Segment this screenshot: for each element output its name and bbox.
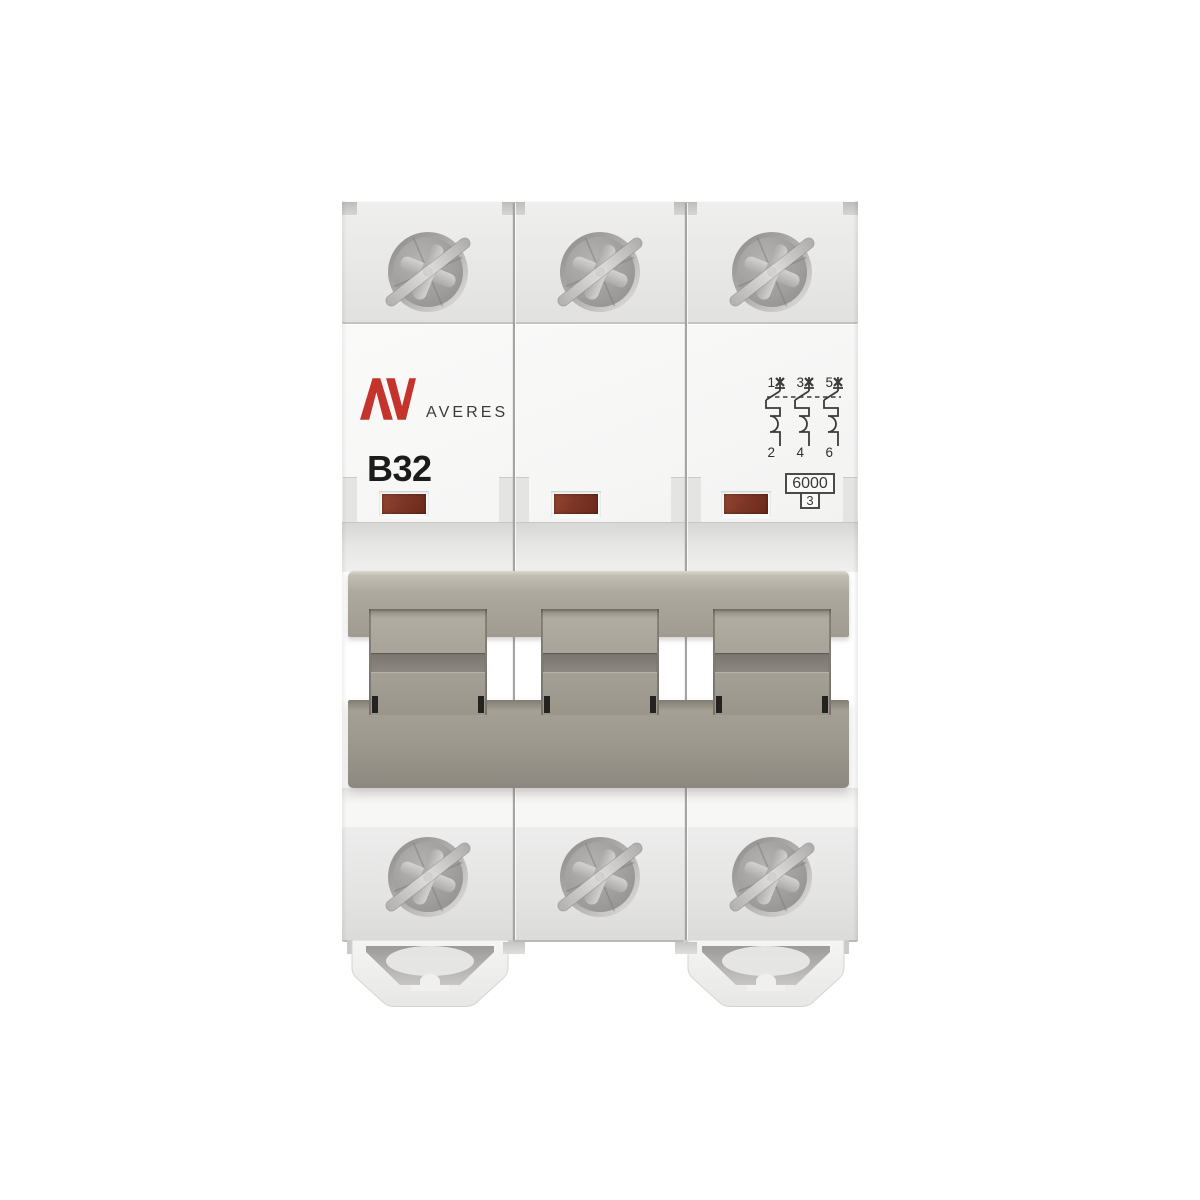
toggle-handle xyxy=(713,609,831,715)
pozidriv-screw-icon xyxy=(382,226,474,318)
terminal-label: 4 xyxy=(796,445,804,460)
terminal-screw xyxy=(554,831,646,928)
three-pole-circuit-diagram-icon: 1 3 5 2 4 6 xyxy=(755,372,847,460)
pozidriv-screw-icon xyxy=(382,831,474,923)
handle-groove xyxy=(371,653,485,672)
handle-slot xyxy=(822,696,828,713)
rating-marking: B32 xyxy=(367,448,432,490)
handle-slot xyxy=(478,696,484,713)
terminal-screw xyxy=(726,831,818,928)
lower-face xyxy=(342,788,858,826)
din-rail-clip xyxy=(683,940,849,1010)
din-rail-clip-left xyxy=(347,940,513,1015)
indicator-window xyxy=(721,491,771,517)
housing-step xyxy=(687,477,701,524)
pozidriv-screw-icon xyxy=(726,831,818,923)
energy-limiting-class-marking: 3 xyxy=(800,492,820,509)
terminal-label: 3 xyxy=(796,375,804,390)
edge-shading xyxy=(853,201,858,940)
housing-step xyxy=(515,477,529,524)
indicator-glass xyxy=(554,494,598,514)
terminal-label: 5 xyxy=(825,375,833,390)
din-rail-clip xyxy=(347,940,513,1010)
indicator-window xyxy=(379,491,429,517)
toggle-handle xyxy=(541,609,659,715)
pozidriv-screw-icon xyxy=(554,226,646,318)
handle-slot xyxy=(650,696,656,713)
indicator-glass xyxy=(382,494,426,514)
terminal-label: 6 xyxy=(825,445,833,460)
indicator-window xyxy=(551,491,601,517)
pozidriv-screw-icon xyxy=(554,831,646,923)
product-photo: AV AVERES B32 xyxy=(0,0,1200,1200)
terminal-screw xyxy=(382,831,474,928)
housing-step xyxy=(499,477,513,524)
housing-tab xyxy=(503,942,525,954)
terminal-label: 2 xyxy=(767,445,775,460)
handle-slot xyxy=(544,696,550,713)
terminal-screw xyxy=(554,226,646,323)
pozidriv-screw-icon xyxy=(726,226,818,318)
averes-logo-mark: AV xyxy=(360,378,416,420)
terminal-screw xyxy=(726,226,818,323)
circuit-breaker: AV AVERES B32 xyxy=(342,201,858,1013)
handle-slot xyxy=(372,696,378,713)
terminal-screw xyxy=(382,226,474,323)
terminal-label: 1 xyxy=(767,375,775,390)
din-rail-clip-right xyxy=(683,940,849,1015)
handle-groove xyxy=(543,653,657,672)
brand-name: AVERES xyxy=(426,404,508,422)
toggle-recess xyxy=(342,522,858,572)
edge-shading xyxy=(342,201,347,940)
breaking-capacity-marking: 6000 xyxy=(785,473,835,494)
housing-step xyxy=(671,477,685,524)
toggle-handle xyxy=(369,609,487,715)
indicator-glass xyxy=(724,494,768,514)
housing-tab xyxy=(675,942,697,954)
handle-groove xyxy=(715,653,829,672)
handle-slot xyxy=(716,696,722,713)
